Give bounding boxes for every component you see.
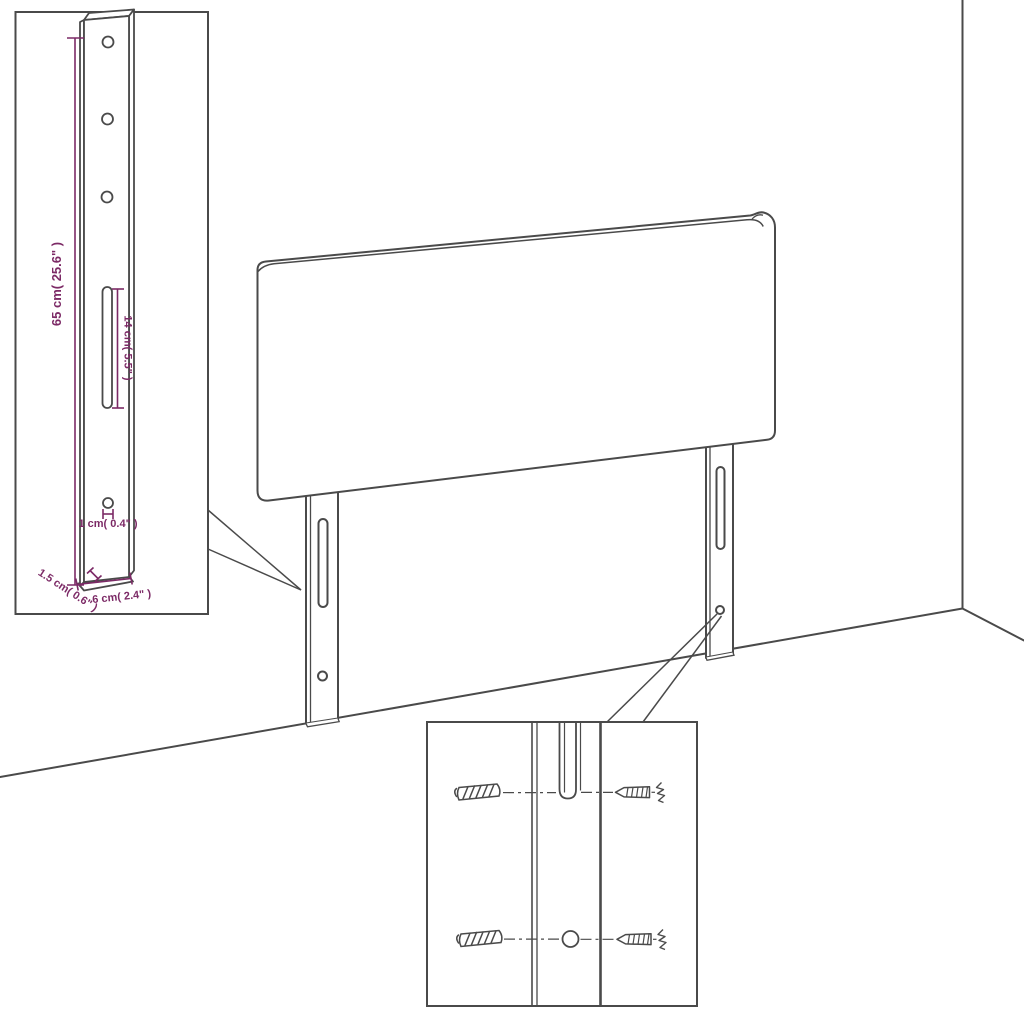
diagram-stage: 65 cm( 25.6" ) 14 cm( 5.5" ) 1 cm( 0.4" … xyxy=(0,0,1024,1024)
leg-dimension-inset: 65 cm( 25.6" ) 14 cm( 5.5" ) 1 cm( 0.4" … xyxy=(16,10,209,615)
bracket-hole-2 xyxy=(102,114,113,125)
hardware-inset-border xyxy=(427,722,697,1006)
left-leg-slot xyxy=(319,519,328,607)
bracket-slot xyxy=(103,287,113,408)
right-leg-slot xyxy=(717,467,725,549)
headboard-panel xyxy=(258,212,776,500)
hardware-inset xyxy=(427,722,697,1006)
floor-line-right xyxy=(963,609,1024,641)
dimension-label-hole: 1 cm( 0.4" ) xyxy=(78,518,137,530)
bracket-hole-3 xyxy=(102,192,113,203)
callout-lines-leg-inset xyxy=(208,510,301,590)
headboard-outline xyxy=(258,212,776,500)
left-leg-hole xyxy=(318,672,327,681)
bracket-hole-4 xyxy=(103,498,113,508)
left-leg xyxy=(306,484,339,727)
right-leg xyxy=(706,437,734,660)
leg-bracket-drawing xyxy=(78,10,134,591)
bracket-hole-1 xyxy=(103,37,114,48)
right-leg-hole xyxy=(716,606,724,614)
dimension-label-slot-length: 14 cm( 5.5" ) xyxy=(122,315,134,380)
assembly-diagram: 65 cm( 25.6" ) 14 cm( 5.5" ) 1 cm( 0.4" … xyxy=(0,0,1024,1024)
dimension-label-height: 65 cm( 25.6" ) xyxy=(49,242,64,326)
